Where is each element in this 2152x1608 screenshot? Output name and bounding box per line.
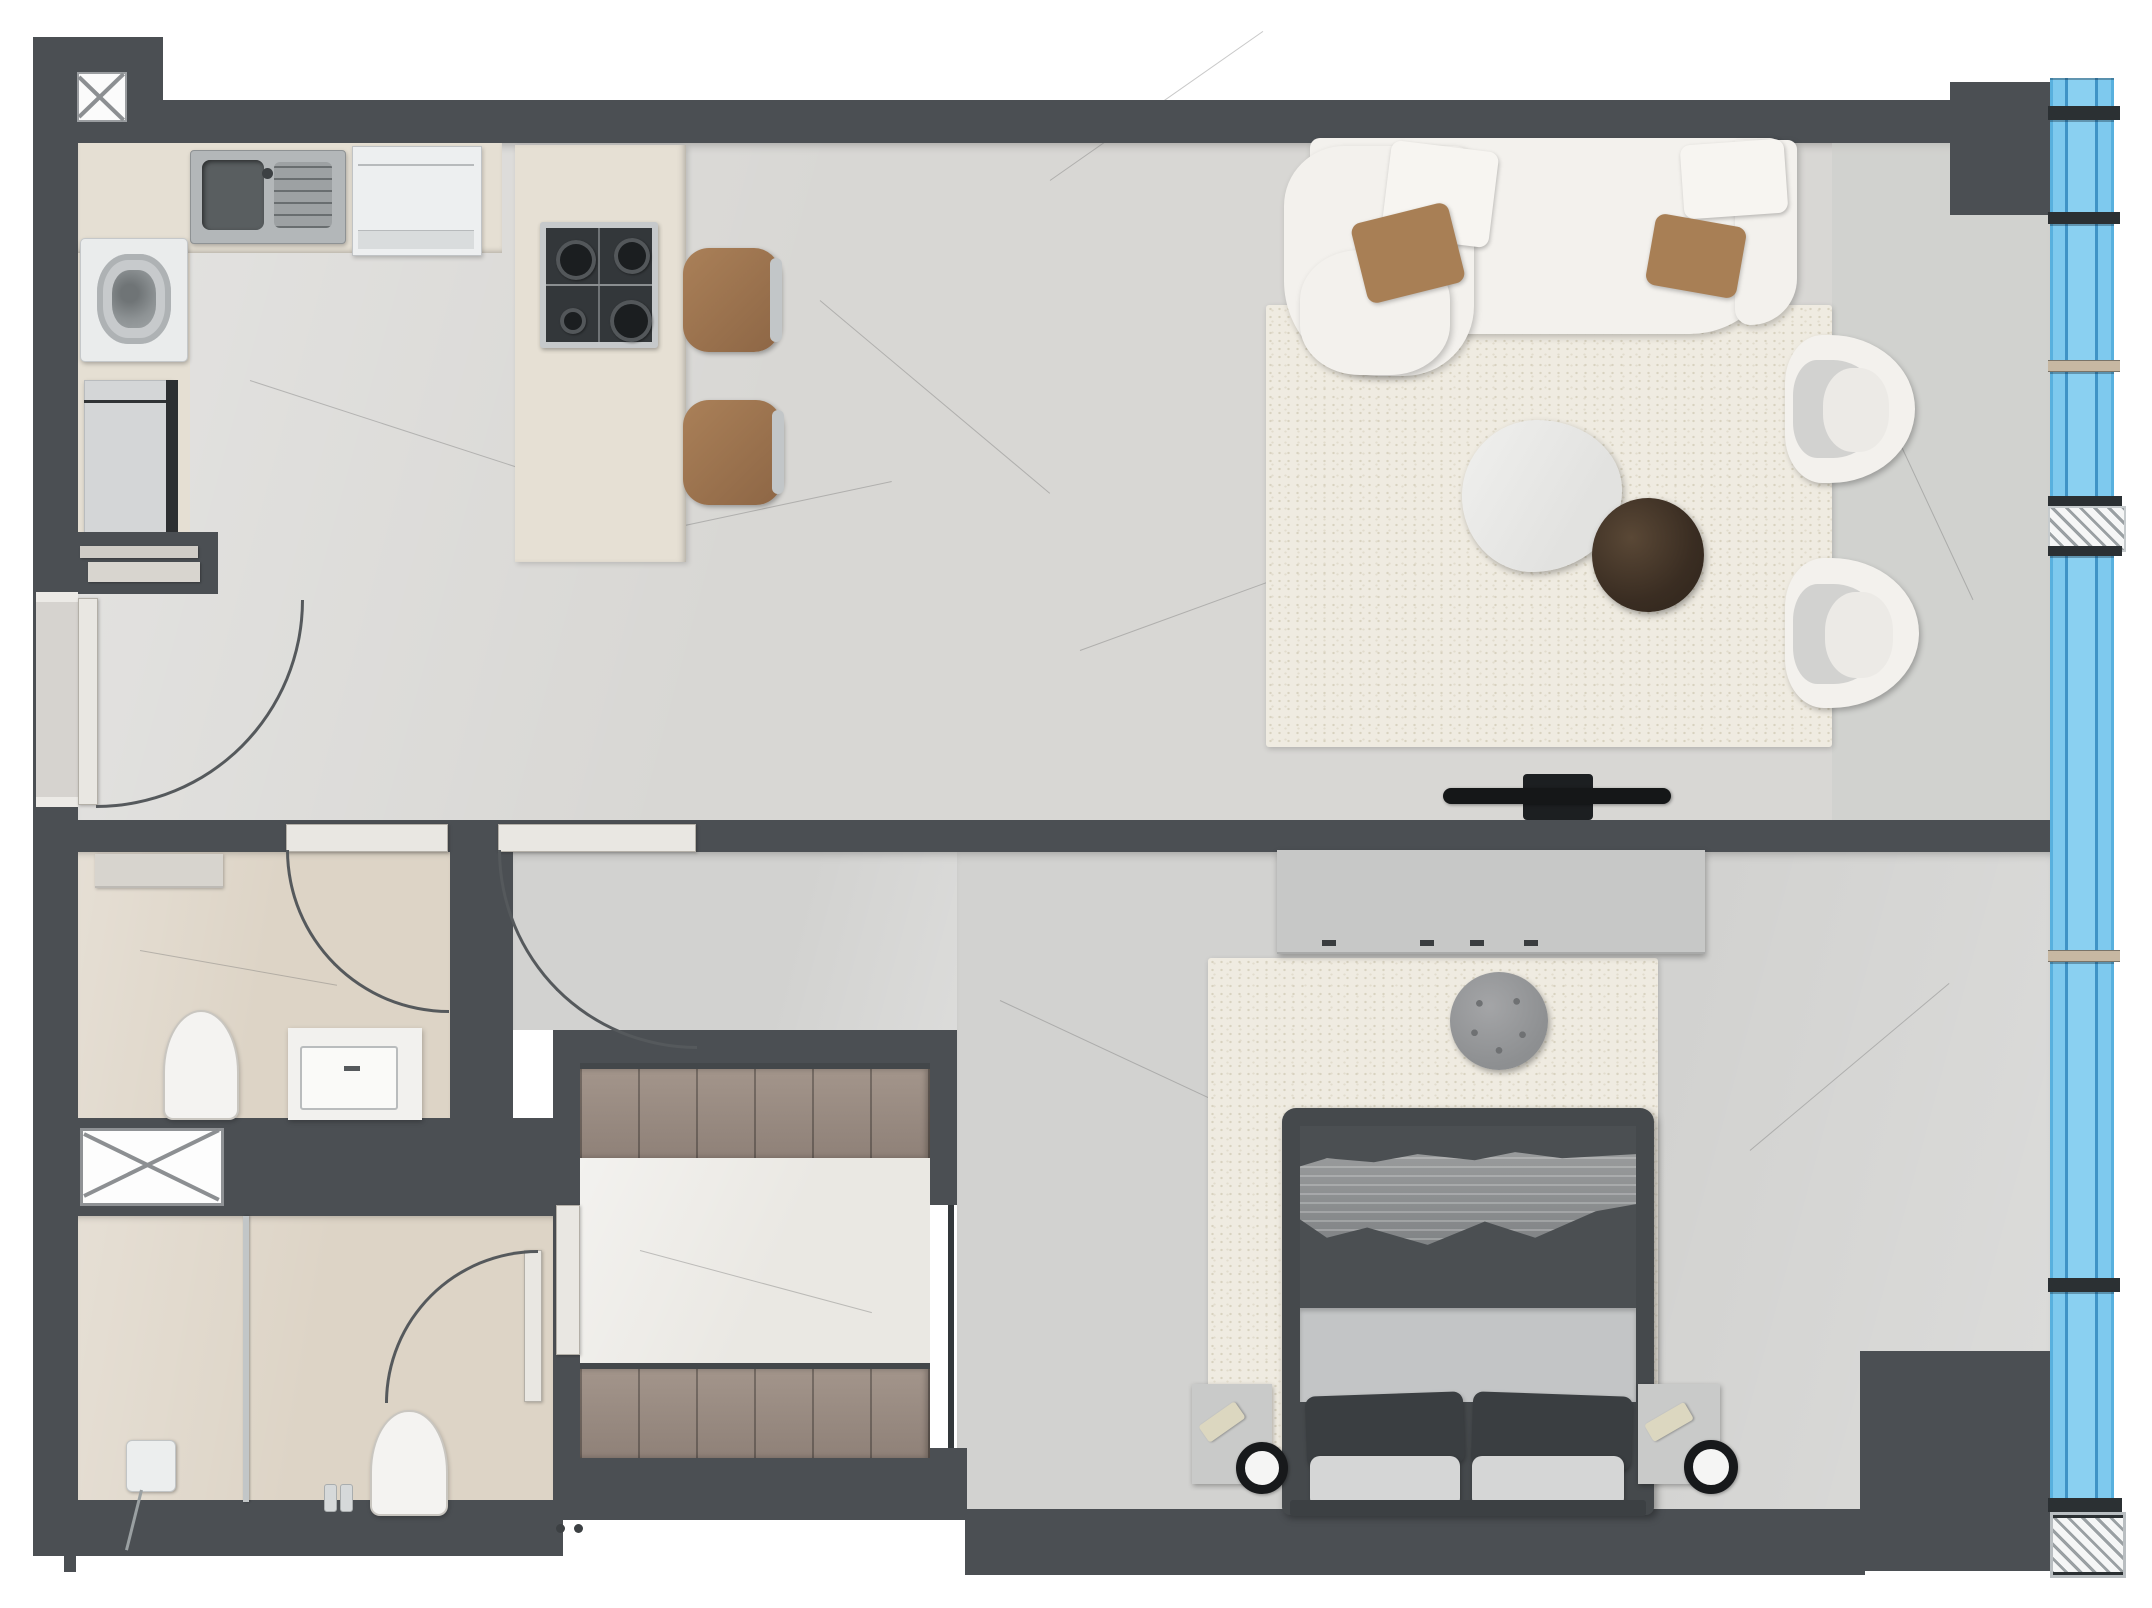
window-panel: [2050, 78, 2114, 108]
dresser-handle: [1470, 940, 1484, 946]
window-mullion: [2048, 1498, 2122, 1512]
bar-chair: [683, 248, 780, 352]
wc-basin-tap: [344, 1066, 360, 1071]
entry-door-recess: [36, 592, 78, 807]
partition-thin-wardrobe: [948, 1205, 954, 1448]
kitchen-island: [515, 145, 686, 562]
wardrobe-unit-top: [580, 1063, 930, 1158]
dresser-handle: [1322, 940, 1336, 946]
bar-chair: [683, 400, 782, 505]
window-mullion: [2048, 1278, 2120, 1292]
ring-lamp: [1684, 1440, 1738, 1494]
bed-sheet-band: [1300, 1308, 1636, 1402]
floor-living-east-shade: [1832, 143, 2050, 820]
wall-wardrobe-east: [930, 1030, 957, 1205]
wardrobe-door-panel: [556, 1205, 580, 1355]
floor-plan-canvas: [0, 0, 2152, 1608]
appliance-panel: [358, 230, 474, 249]
wc-wall-cabinet: [95, 854, 223, 888]
wardrobe-unit-bottom: [580, 1363, 930, 1458]
window-panel: [2050, 224, 2114, 362]
toiletry-bottle: [340, 1484, 353, 1512]
window-mullion-tan: [2048, 360, 2120, 372]
wall-bottom-bedroom: [965, 1509, 1865, 1575]
sink-drainboard: [274, 162, 332, 228]
window-mullion: [2048, 106, 2120, 120]
ring-lamp: [1236, 1442, 1288, 1494]
bedroom-dresser: [1277, 850, 1705, 954]
tub-chair-cushion: [1825, 592, 1893, 678]
wall-top: [163, 100, 1950, 143]
shower-control-box: [126, 1440, 176, 1492]
bed-headboard: [1290, 1500, 1646, 1516]
wall-bottom-wardrobe: [560, 1448, 967, 1520]
shower-glass-partition: [243, 1216, 249, 1502]
round-pouf: [1450, 972, 1548, 1070]
window-panel: [2050, 556, 2114, 952]
wall-bottom-right-corner: [1860, 1351, 2052, 1571]
hatched-corner-column: [2050, 1512, 2126, 1578]
appliance-line: [358, 164, 474, 166]
window-panel: [2050, 120, 2114, 214]
fridge-side-gap: [166, 380, 178, 532]
hob-burner: [610, 300, 652, 342]
window-mullion: [2048, 546, 2122, 556]
hob-burner: [556, 240, 596, 280]
bar-chair-backrest: [770, 258, 782, 342]
fridge-door-seam: [84, 400, 178, 403]
sofa-cushion-white: [1680, 138, 1789, 219]
window-mullion-tan: [2048, 950, 2120, 962]
wall-mounted-tv: [1443, 788, 1671, 804]
bar-chair-backrest: [772, 410, 784, 494]
dresser-handle: [1524, 940, 1538, 946]
refrigerator: [84, 380, 172, 534]
hob-burner: [614, 238, 650, 274]
wall-wardrobe-north: [553, 1030, 957, 1065]
entry-shoe-shelf: [80, 546, 198, 558]
sink-bowl-left: [202, 160, 264, 230]
washer-drum-inner: [112, 270, 156, 328]
dimension-dot: [556, 1524, 565, 1533]
hob-burner: [560, 308, 586, 334]
dark-round-side-table: [1592, 498, 1704, 612]
dimension-dot: [574, 1524, 583, 1533]
wall-left: [33, 143, 78, 1504]
window-mullion: [2048, 496, 2122, 506]
toiletry-bottle: [324, 1484, 337, 1512]
dresser-handle: [1420, 940, 1434, 946]
sink-faucet: [262, 168, 273, 179]
tub-chair-cushion: [1823, 368, 1889, 452]
entry-recess-cap: [36, 592, 78, 602]
window-mullion: [2048, 212, 2120, 224]
wall-bottom-left: [33, 1500, 563, 1556]
wc-basin: [300, 1046, 398, 1110]
window-panel: [2050, 1292, 2114, 1500]
wc-door-leaf: [286, 824, 448, 852]
entry-shoe-cabinet: [88, 562, 200, 582]
window-panel: [2050, 372, 2114, 498]
window-panel: [2050, 962, 2114, 1280]
entry-door-leaf: [78, 598, 98, 805]
entry-recess-cap: [36, 797, 78, 807]
dimension-tick: [64, 1556, 76, 1572]
wall-top-right-corner: [1950, 82, 2052, 215]
corridor-door-leaf: [498, 824, 696, 852]
